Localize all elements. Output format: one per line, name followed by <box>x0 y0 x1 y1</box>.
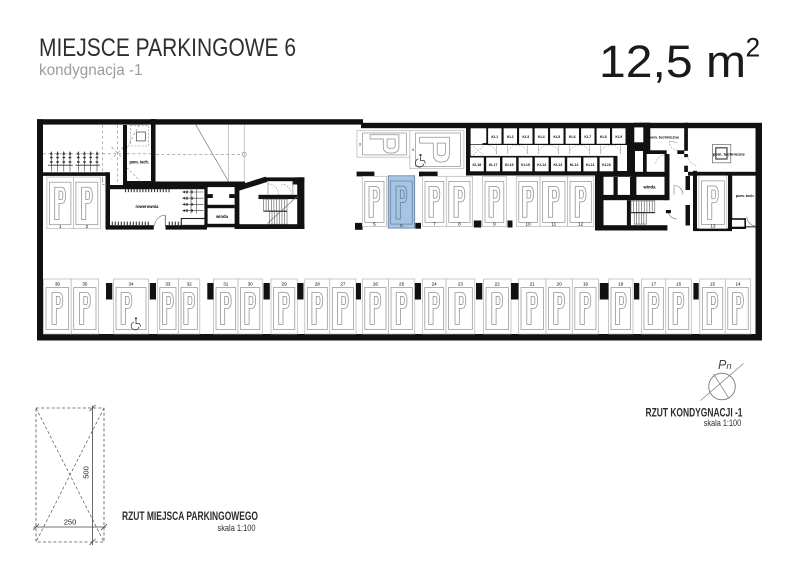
svg-text:pom. techniczne: pom. techniczne <box>713 152 746 157</box>
svg-text:RZUT MIEJSCA PARKINGOWEGO: RZUT MIEJSCA PARKINGOWEGO <box>122 509 258 523</box>
svg-text:21: 21 <box>530 282 536 287</box>
svg-text:pom. tech.: pom. tech. <box>736 193 755 198</box>
svg-text:KL16: KL16 <box>505 163 514 167</box>
svg-text:500: 500 <box>82 466 91 479</box>
svg-text:pom. tech.: pom. tech. <box>130 160 150 165</box>
svg-text:34: 34 <box>128 282 134 287</box>
svg-text:pom. techniczne: pom. techniczne <box>649 135 680 140</box>
svg-text:14: 14 <box>735 282 741 287</box>
svg-text:12,5 m: 12,5 m <box>599 36 746 87</box>
svg-text:26: 26 <box>373 282 379 287</box>
svg-text:19: 19 <box>583 282 589 287</box>
svg-text:7: 7 <box>433 222 436 227</box>
svg-text:36: 36 <box>55 282 61 287</box>
svg-text:9: 9 <box>493 222 496 227</box>
svg-text:32: 32 <box>187 282 193 287</box>
svg-text:2: 2 <box>746 33 761 63</box>
svg-text:8: 8 <box>458 222 461 227</box>
svg-text:KL5: KL5 <box>553 135 560 139</box>
svg-text:6: 6 <box>400 223 403 228</box>
svg-text:skala 1:100: skala 1:100 <box>218 523 256 533</box>
svg-text:25: 25 <box>399 282 405 287</box>
svg-text:KL11: KL11 <box>586 163 595 167</box>
svg-text:15: 15 <box>710 282 716 287</box>
svg-text:16: 16 <box>676 282 682 287</box>
svg-text:12: 12 <box>578 222 584 227</box>
svg-text:31: 31 <box>223 282 229 287</box>
svg-text:KL1: KL1 <box>491 135 498 139</box>
svg-text:Pn: Pn <box>718 358 732 372</box>
svg-text:KL15: KL15 <box>521 163 530 167</box>
svg-text:29: 29 <box>282 282 288 287</box>
svg-text:KL10: KL10 <box>602 163 611 167</box>
svg-text:33: 33 <box>165 282 171 287</box>
svg-text:KL12: KL12 <box>570 163 579 167</box>
svg-text:KL18: KL18 <box>473 163 482 167</box>
svg-text:MIEJSCE PARKINGOWE 6: MIEJSCE PARKINGOWE 6 <box>39 35 296 62</box>
svg-text:5: 5 <box>373 222 376 227</box>
svg-text:13: 13 <box>710 224 716 229</box>
svg-text:winda: winda <box>643 185 657 190</box>
svg-text:1: 1 <box>59 224 62 229</box>
svg-text:KL17: KL17 <box>489 163 498 167</box>
svg-text:KL9: KL9 <box>615 135 622 139</box>
svg-text:KL14: KL14 <box>537 163 546 167</box>
svg-text:KL6: KL6 <box>569 135 576 139</box>
svg-text:KL8: KL8 <box>600 135 607 139</box>
svg-text:KL3: KL3 <box>522 135 529 139</box>
svg-text:winda: winda <box>215 214 229 219</box>
svg-text:24: 24 <box>432 282 438 287</box>
svg-text:11: 11 <box>551 222 556 227</box>
svg-text:18: 18 <box>618 282 624 287</box>
svg-text:27: 27 <box>340 282 346 287</box>
svg-text:22: 22 <box>495 282 501 287</box>
svg-text:2: 2 <box>86 224 89 229</box>
svg-text:23: 23 <box>458 282 464 287</box>
svg-text:250: 250 <box>64 518 77 527</box>
svg-text:10: 10 <box>526 222 532 227</box>
svg-text:KL2: KL2 <box>507 135 514 139</box>
svg-text:KL13: KL13 <box>554 163 563 167</box>
svg-text:skala 1:100: skala 1:100 <box>704 418 742 428</box>
svg-text:17: 17 <box>651 282 657 287</box>
svg-text:kondygnacja -1: kondygnacja -1 <box>39 62 143 79</box>
svg-text:30: 30 <box>248 282 254 287</box>
svg-text:KL4: KL4 <box>538 135 545 139</box>
svg-text:KL7: KL7 <box>584 135 591 139</box>
svg-text:35: 35 <box>82 282 88 287</box>
svg-text:28: 28 <box>315 282 321 287</box>
svg-text:rowerownia: rowerownia <box>136 204 160 209</box>
svg-text:20: 20 <box>557 282 563 287</box>
